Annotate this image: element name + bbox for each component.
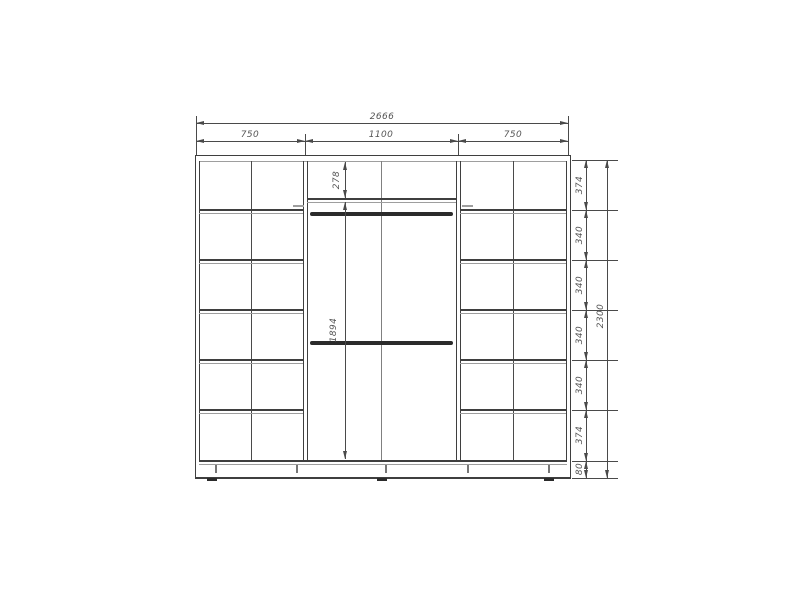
arrowhead	[343, 451, 347, 459]
dim-label-hanging-height: 1894	[329, 315, 339, 345]
shelf-line	[460, 259, 566, 261]
extension-line	[572, 410, 618, 411]
arrowhead	[458, 139, 466, 143]
shelf-line	[307, 198, 456, 200]
arrowhead	[584, 202, 588, 210]
dim-label-right-section: 750	[483, 130, 543, 140]
arrowhead	[343, 162, 347, 170]
arrowhead	[560, 139, 568, 143]
center-join-line	[381, 161, 382, 461]
plinth-leg-mark	[548, 465, 550, 473]
arrowhead	[343, 202, 347, 210]
shelf-line	[460, 263, 566, 264]
bottom-panel-inner-edge	[199, 464, 567, 465]
foot	[377, 478, 387, 481]
plinth-leg-mark	[467, 465, 469, 473]
arrowhead	[305, 139, 313, 143]
shelf-line	[460, 209, 566, 211]
shelf-line	[307, 202, 456, 203]
dimension-line	[196, 123, 568, 124]
dim-label-segment: 340	[575, 270, 585, 300]
wardrobe-front-elevation: 2666 750 1100 750	[0, 0, 800, 600]
shelf-line	[199, 413, 303, 414]
shelf-line	[199, 263, 303, 264]
left-side-panel-outer	[195, 155, 196, 479]
plinth-leg-mark	[385, 465, 387, 473]
shelf-line	[460, 359, 566, 361]
dimension-line	[196, 141, 568, 142]
arrowhead	[584, 210, 588, 218]
shelf-line	[199, 359, 303, 361]
dimension-line	[345, 202, 346, 459]
extension-line	[568, 116, 569, 155]
foot	[207, 478, 217, 481]
arrowhead	[584, 260, 588, 268]
partition-right-outer	[460, 161, 461, 462]
hanger-rod-upper	[310, 212, 453, 216]
dim-label-segment: 340	[575, 220, 585, 250]
shelf-line	[460, 309, 566, 311]
arrowhead	[450, 139, 458, 143]
shelf-line	[199, 363, 303, 364]
shelf-line	[199, 313, 303, 314]
arrowhead	[560, 121, 568, 125]
partition-left-inner	[307, 161, 308, 462]
arrowhead	[584, 352, 588, 360]
shelf-line	[460, 409, 566, 411]
extension-line	[305, 134, 306, 155]
shelf-line	[460, 213, 566, 214]
foot	[544, 478, 554, 481]
shelf-line	[460, 313, 566, 314]
arrowhead	[196, 139, 204, 143]
right-side-panel-outer	[570, 155, 571, 479]
left-side-panel-inner	[199, 161, 200, 462]
right-side-panel-inner	[566, 161, 567, 462]
top-panel-inner-edge	[199, 161, 567, 162]
dim-label-middle-section: 1100	[351, 130, 411, 140]
dim-label-segment: 374	[575, 170, 585, 200]
bottom-panel-edge	[199, 460, 567, 462]
rod-bracket-left	[293, 205, 304, 207]
extension-line	[572, 360, 618, 361]
shelf-line	[460, 413, 566, 414]
top-panel-edge	[195, 155, 571, 156]
arrowhead	[584, 360, 588, 368]
arrowhead	[343, 190, 347, 198]
dim-label-segment: 374	[575, 420, 585, 450]
arrowhead	[584, 160, 588, 168]
dimension-line	[607, 160, 608, 478]
extension-line	[572, 310, 618, 311]
arrowhead	[297, 139, 305, 143]
shelf-line	[199, 409, 303, 411]
dim-label-plinth-height: 80	[575, 454, 585, 484]
plinth-leg-mark	[215, 465, 217, 473]
arrowhead	[605, 160, 609, 168]
shelf-line	[199, 309, 303, 311]
arrowhead	[584, 252, 588, 260]
extension-line	[572, 210, 618, 211]
arrowhead	[605, 470, 609, 478]
arrowhead	[584, 302, 588, 310]
dim-label-segment: 340	[575, 320, 585, 350]
shelf-line	[460, 363, 566, 364]
dim-label-segment: 340	[575, 370, 585, 400]
rod-bracket-right	[462, 205, 473, 207]
dim-label-left-section: 750	[220, 130, 280, 140]
shelf-line	[199, 259, 303, 261]
arrowhead	[584, 310, 588, 318]
arrowhead	[196, 121, 204, 125]
dim-label-overall-width: 2666	[352, 112, 412, 122]
extension-line	[572, 260, 618, 261]
plinth-leg-mark	[296, 465, 298, 473]
dim-label-top-shelf-depth: 278	[332, 165, 342, 195]
arrowhead	[584, 410, 588, 418]
divider-right-column	[513, 161, 514, 461]
shelf-line	[199, 209, 303, 211]
arrowhead	[584, 402, 588, 410]
divider-left-column	[251, 161, 252, 461]
partition-right-inner	[456, 161, 457, 462]
extension-line	[572, 160, 618, 161]
extension-line	[458, 134, 459, 155]
shelf-line	[199, 213, 303, 214]
dim-label-overall-height: 2300	[596, 301, 606, 331]
